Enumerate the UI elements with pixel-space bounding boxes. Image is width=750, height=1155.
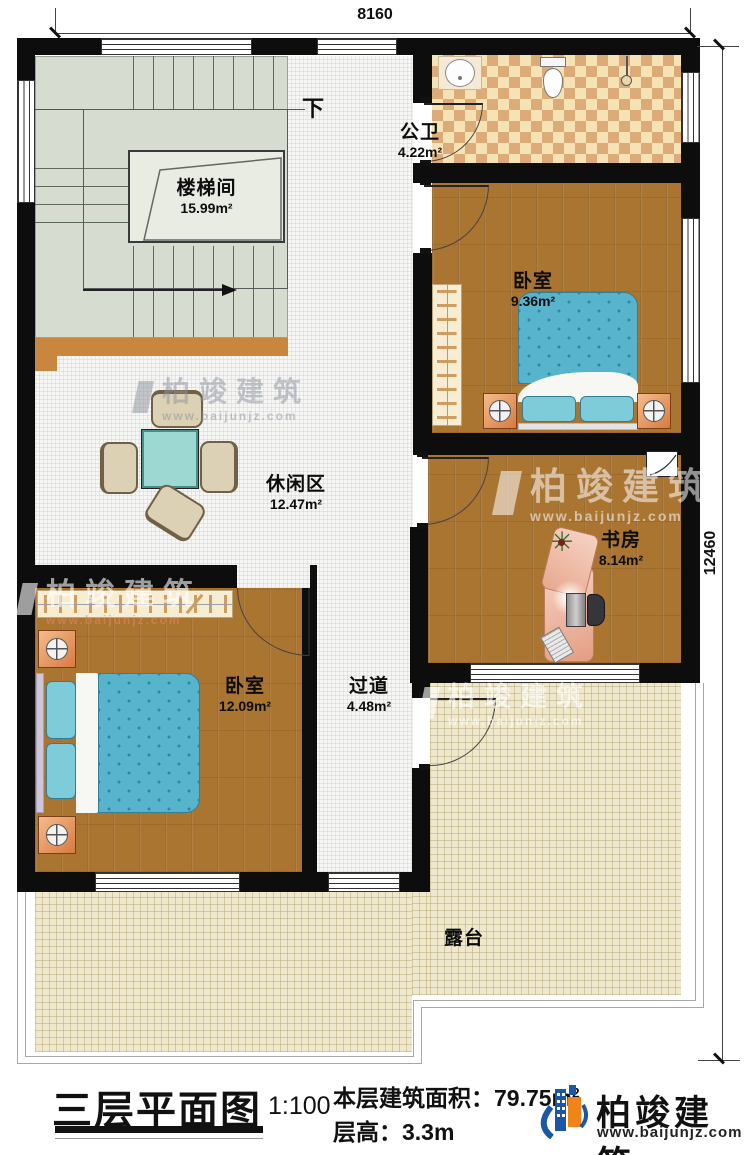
wardrobe-bedroom1 xyxy=(432,284,462,426)
chair xyxy=(100,442,138,494)
room-name: 楼梯间 xyxy=(128,178,285,200)
window-right-bedroom1 xyxy=(681,218,700,383)
nightstand-lamp-icon xyxy=(489,400,511,422)
wall xyxy=(240,872,328,892)
headboard-bedroom2 xyxy=(36,673,44,813)
room-name: 书房 xyxy=(566,530,676,552)
bed-bedroom2 xyxy=(98,673,200,813)
room-label-bedroom2: 卧室 12.09m² xyxy=(190,676,300,714)
window-study-terrace xyxy=(470,663,640,683)
wall xyxy=(413,55,432,103)
floor-plan: ✳ 楼梯间 15.99m² 公卫 4.22m² 卧室 9.36m² 书房 8.1… xyxy=(0,0,750,1155)
pillow xyxy=(46,681,76,739)
office-chair xyxy=(587,594,605,626)
nightstand-lamp-icon xyxy=(46,638,68,660)
wall xyxy=(681,143,700,218)
room-area: 4.22m² xyxy=(365,144,475,160)
wall xyxy=(681,55,700,72)
terrace-railing xyxy=(17,1063,422,1064)
floor-area-label: 本层建筑面积：79.75m xyxy=(333,1085,572,1111)
dimension-right-value: 12460 xyxy=(702,523,720,583)
stair-direction-arrow xyxy=(222,284,237,296)
room-label-terrace: 露台 xyxy=(424,928,504,950)
wall xyxy=(310,565,317,588)
brand-logo-icon xyxy=(538,1083,592,1139)
pillow xyxy=(522,396,576,422)
pillow xyxy=(46,743,76,799)
room-name: 卧室 xyxy=(478,271,588,293)
room-name: 露台 xyxy=(424,928,504,950)
wall xyxy=(17,872,95,892)
room-label-corridor: 过道 4.48m² xyxy=(314,676,424,714)
wardrobe-bedroom2 xyxy=(37,590,233,618)
monitor-icon xyxy=(566,593,586,627)
room-label-bathroom: 公卫 4.22m² xyxy=(365,122,475,160)
room-area: 9.36m² xyxy=(478,293,588,309)
wall xyxy=(252,38,317,55)
window-left xyxy=(17,80,35,203)
door-jamb xyxy=(420,248,431,254)
room-area: 8.14m² xyxy=(566,552,676,568)
wall xyxy=(397,38,700,55)
brand-url: www.baijunjz.com xyxy=(597,1124,742,1141)
terrace-floor-left xyxy=(35,892,412,1052)
window-bedroom2-terrace xyxy=(95,872,240,892)
room-area: 12.47m² xyxy=(241,496,351,512)
wall xyxy=(17,38,101,55)
window-corridor-terrace xyxy=(328,872,400,892)
wall xyxy=(17,203,35,892)
room-label-study: 书房 8.14m² xyxy=(566,530,676,568)
terrace-railing xyxy=(421,1007,422,1064)
door-jamb xyxy=(420,160,431,166)
headboard-bedroom1 xyxy=(518,423,638,430)
dimension-top-value: 8160 xyxy=(348,6,402,24)
room-name: 公卫 xyxy=(365,122,475,144)
nightstand-lamp-icon xyxy=(46,824,68,846)
room-name: 卧室 xyxy=(190,676,300,698)
pillow xyxy=(580,396,634,422)
room-area: 15.99m² xyxy=(128,200,285,216)
dimension-line-top xyxy=(55,33,691,34)
brand-name: 柏竣建筑 xyxy=(596,1085,750,1155)
terrace-railing xyxy=(703,683,704,1008)
stair-landing-strip-corner xyxy=(35,356,57,371)
tea-table xyxy=(142,430,198,488)
terrace-railing xyxy=(695,683,696,1001)
plant-pot xyxy=(558,539,565,546)
wall xyxy=(17,55,35,80)
room-name: 过道 xyxy=(314,676,424,698)
terrace-railing xyxy=(413,1000,414,1057)
door-jamb xyxy=(420,97,431,103)
wall xyxy=(413,253,432,433)
wall xyxy=(681,383,700,683)
window-top-1 xyxy=(101,38,252,55)
shower-head-icon xyxy=(621,75,632,86)
room-label-stairwell: 楼梯间 15.99m² xyxy=(128,178,285,216)
floor-height-text: 层高：3.3m xyxy=(333,1113,454,1147)
room-area: 4.48m² xyxy=(314,698,424,714)
title-block: 三层平面图 1:100 本层建筑面积：79.75m2 层高：3.3m 柏竣建筑 … xyxy=(0,1065,750,1155)
room-label-bedroom1: 卧室 9.36m² xyxy=(478,271,588,309)
title-underline-thin xyxy=(55,1138,263,1139)
room-name: 休闲区 xyxy=(241,474,351,496)
sink-icon xyxy=(445,59,475,87)
title-underline xyxy=(55,1126,263,1133)
sink-drain xyxy=(458,76,462,80)
stair-landing-strip xyxy=(35,338,288,356)
shower-stem xyxy=(626,56,628,76)
terrace-railing xyxy=(25,892,26,1057)
toilet-tank xyxy=(540,57,566,67)
duct-shaft-symbol xyxy=(646,451,678,477)
terrace-railing xyxy=(421,1007,703,1008)
terrace-railing xyxy=(25,1056,414,1057)
nightstand xyxy=(637,393,671,429)
dimension-line-right xyxy=(722,46,723,1060)
nightstand xyxy=(483,393,517,429)
room-area: 12.09m² xyxy=(190,698,300,714)
stair-direction-line xyxy=(83,289,225,291)
wall xyxy=(640,663,700,683)
window-top-2 xyxy=(317,38,397,55)
nightstand xyxy=(38,630,76,668)
wall xyxy=(400,872,430,892)
window-right-bathroom xyxy=(681,72,700,143)
wall xyxy=(413,163,681,183)
nightstand xyxy=(38,816,76,854)
drawing-scale: 1:100 xyxy=(268,1092,331,1121)
chair xyxy=(151,390,203,428)
door-jamb xyxy=(417,451,428,457)
terrace-railing xyxy=(413,1000,695,1001)
nightstand-lamp-icon xyxy=(643,400,665,422)
door-jamb xyxy=(419,764,430,770)
dimension-tick xyxy=(713,38,725,50)
dimension-tick xyxy=(713,1052,725,1064)
door-jamb xyxy=(417,523,428,529)
door-jamb xyxy=(420,179,431,185)
stair-treads-upper xyxy=(133,56,289,109)
wall xyxy=(410,527,428,663)
stair-down-label: 下 xyxy=(293,96,333,121)
room-label-leisure: 休闲区 12.47m² xyxy=(241,474,351,512)
terrace-railing xyxy=(17,892,18,1064)
wall xyxy=(17,565,237,588)
chair xyxy=(200,441,238,493)
